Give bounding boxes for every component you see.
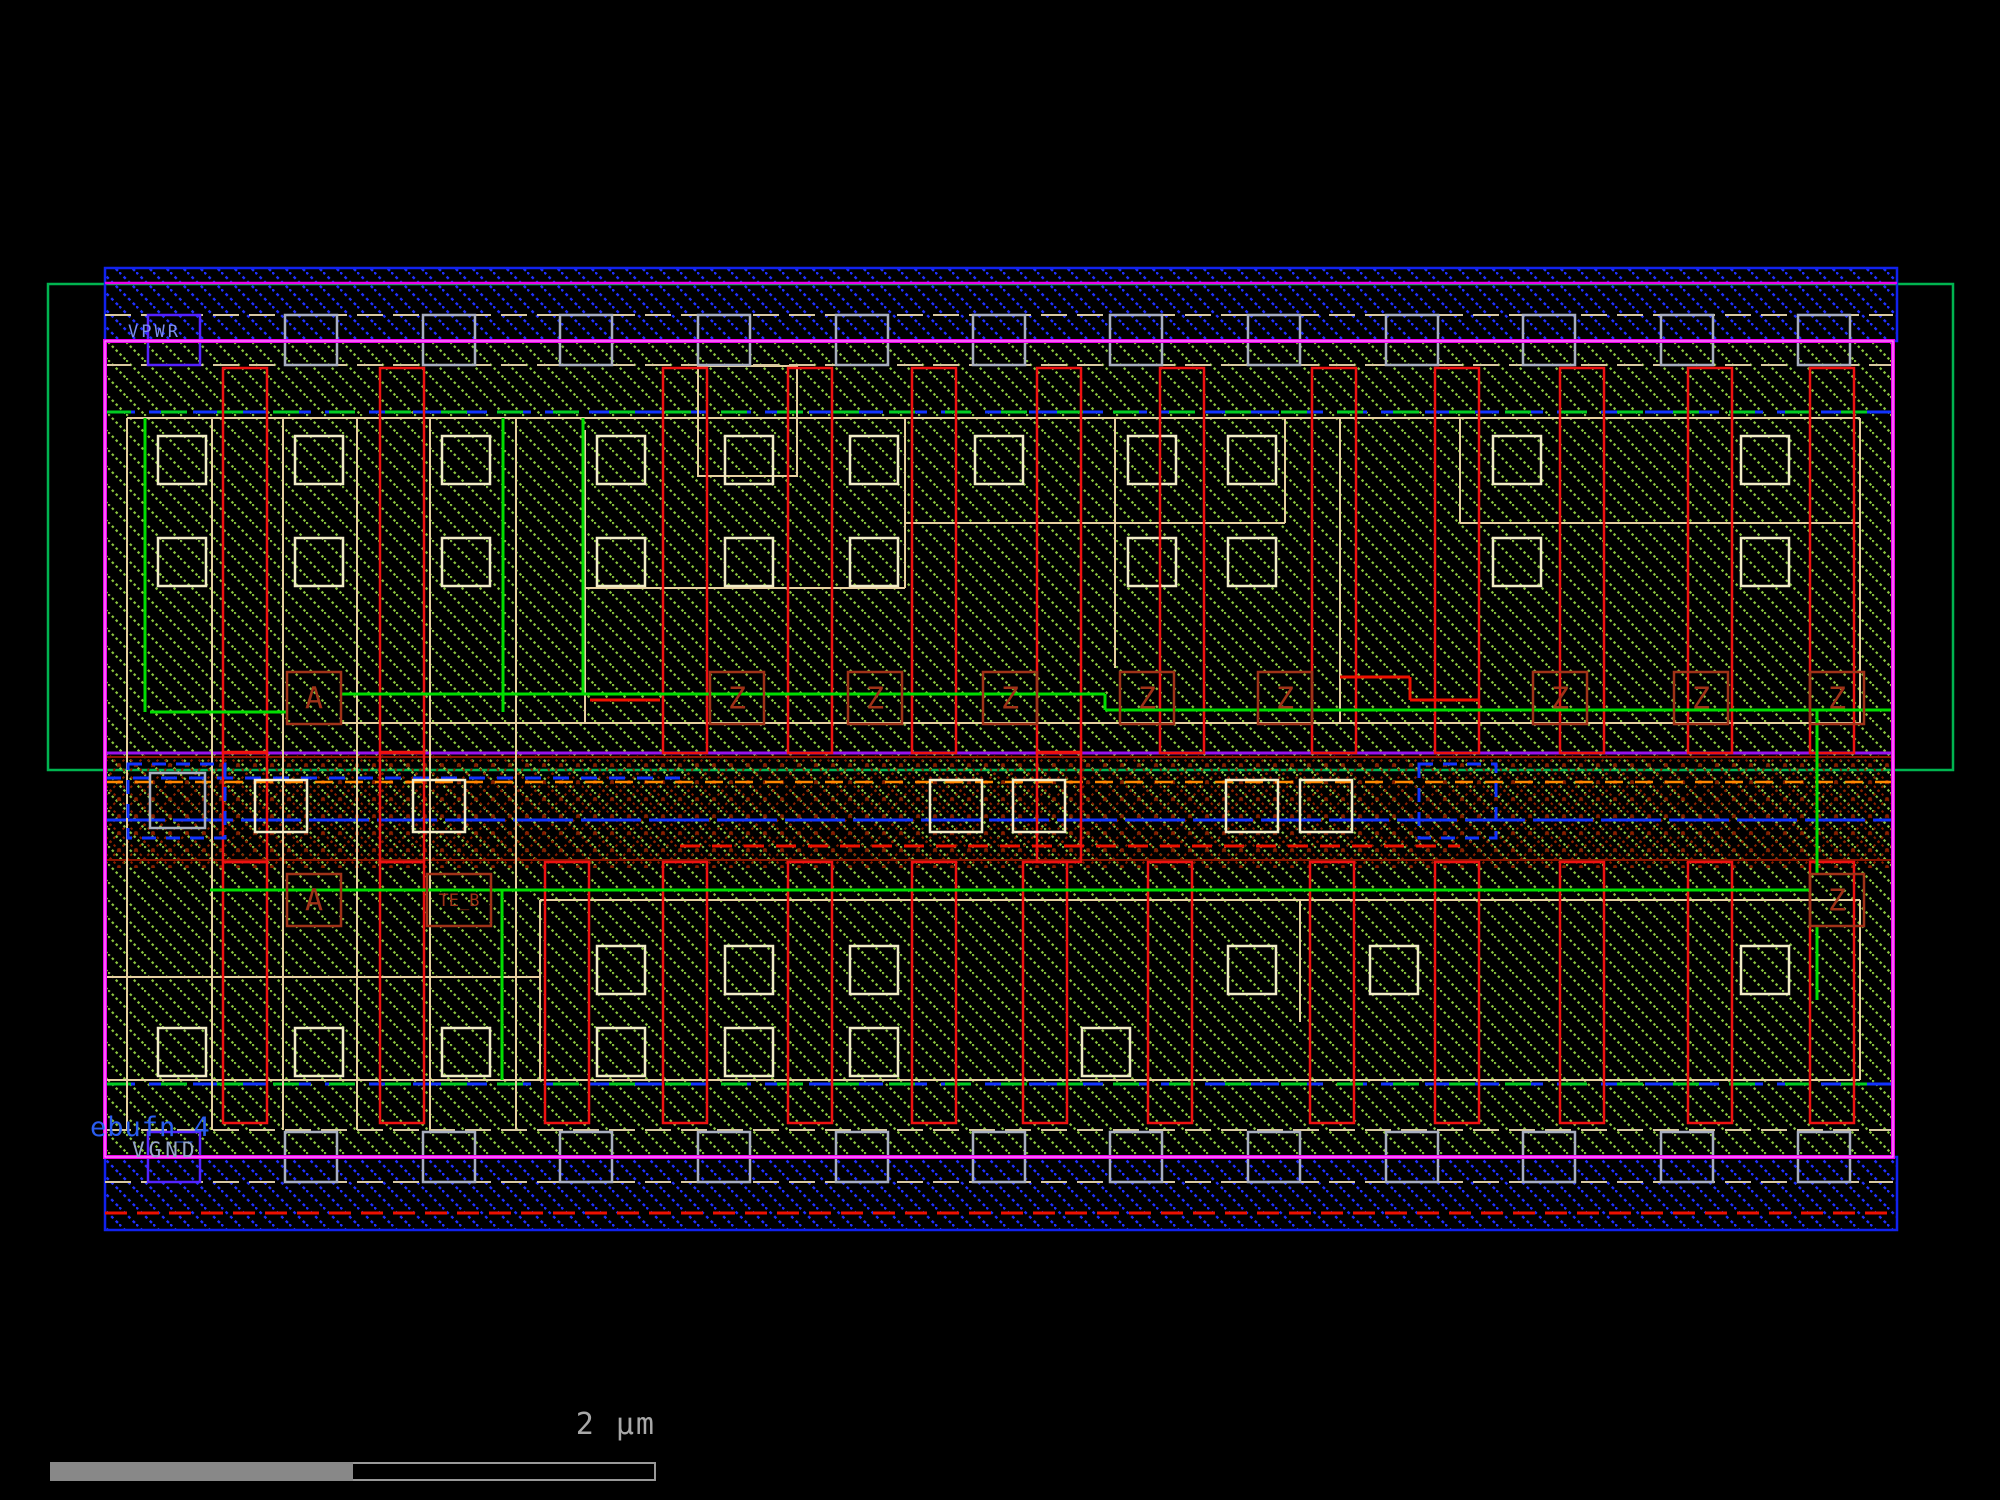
pin-z-upper-text: Z [728,682,746,717]
tap-crosshatch [105,752,1893,868]
pin-z-upper-text: Z [1276,682,1294,717]
scalebar-fill [50,1462,353,1481]
vpwr-rail [105,268,1897,341]
pin-a-lower-text: A [305,884,323,919]
pin-z-upper-text: Z [1001,682,1019,717]
cell-diff-hatch [105,341,1893,1157]
pin-z-lower-text: Z [1828,884,1846,919]
vgnd-rail [105,1157,1897,1230]
label-cell-name: ebufn_4 [90,1114,211,1141]
layout-viewer: AZZZZZZZZATE_BZ VPWR ebufn_4 VGND 2 µm [0,0,2000,1500]
layout-canvas[interactable]: AZZZZZZZZATE_BZ [0,0,2000,1500]
cell-body [105,341,1893,1157]
pin-z-upper-text: Z [1551,682,1569,717]
pin-z-upper-text: Z [866,682,884,717]
pin-z-upper-text: Z [1828,682,1846,717]
tap-channel [105,752,1893,868]
scalebar-label: 2 µm [560,1410,656,1440]
pin-a-upper-text: A [305,682,323,717]
label-vgnd: VGND [132,1140,199,1161]
pin-z-upper-text: Z [1138,682,1156,717]
pin-teb-text: TE_B [439,891,480,911]
label-vpwr: VPWR [128,324,181,341]
pin-z-upper-text: Z [1692,682,1710,717]
